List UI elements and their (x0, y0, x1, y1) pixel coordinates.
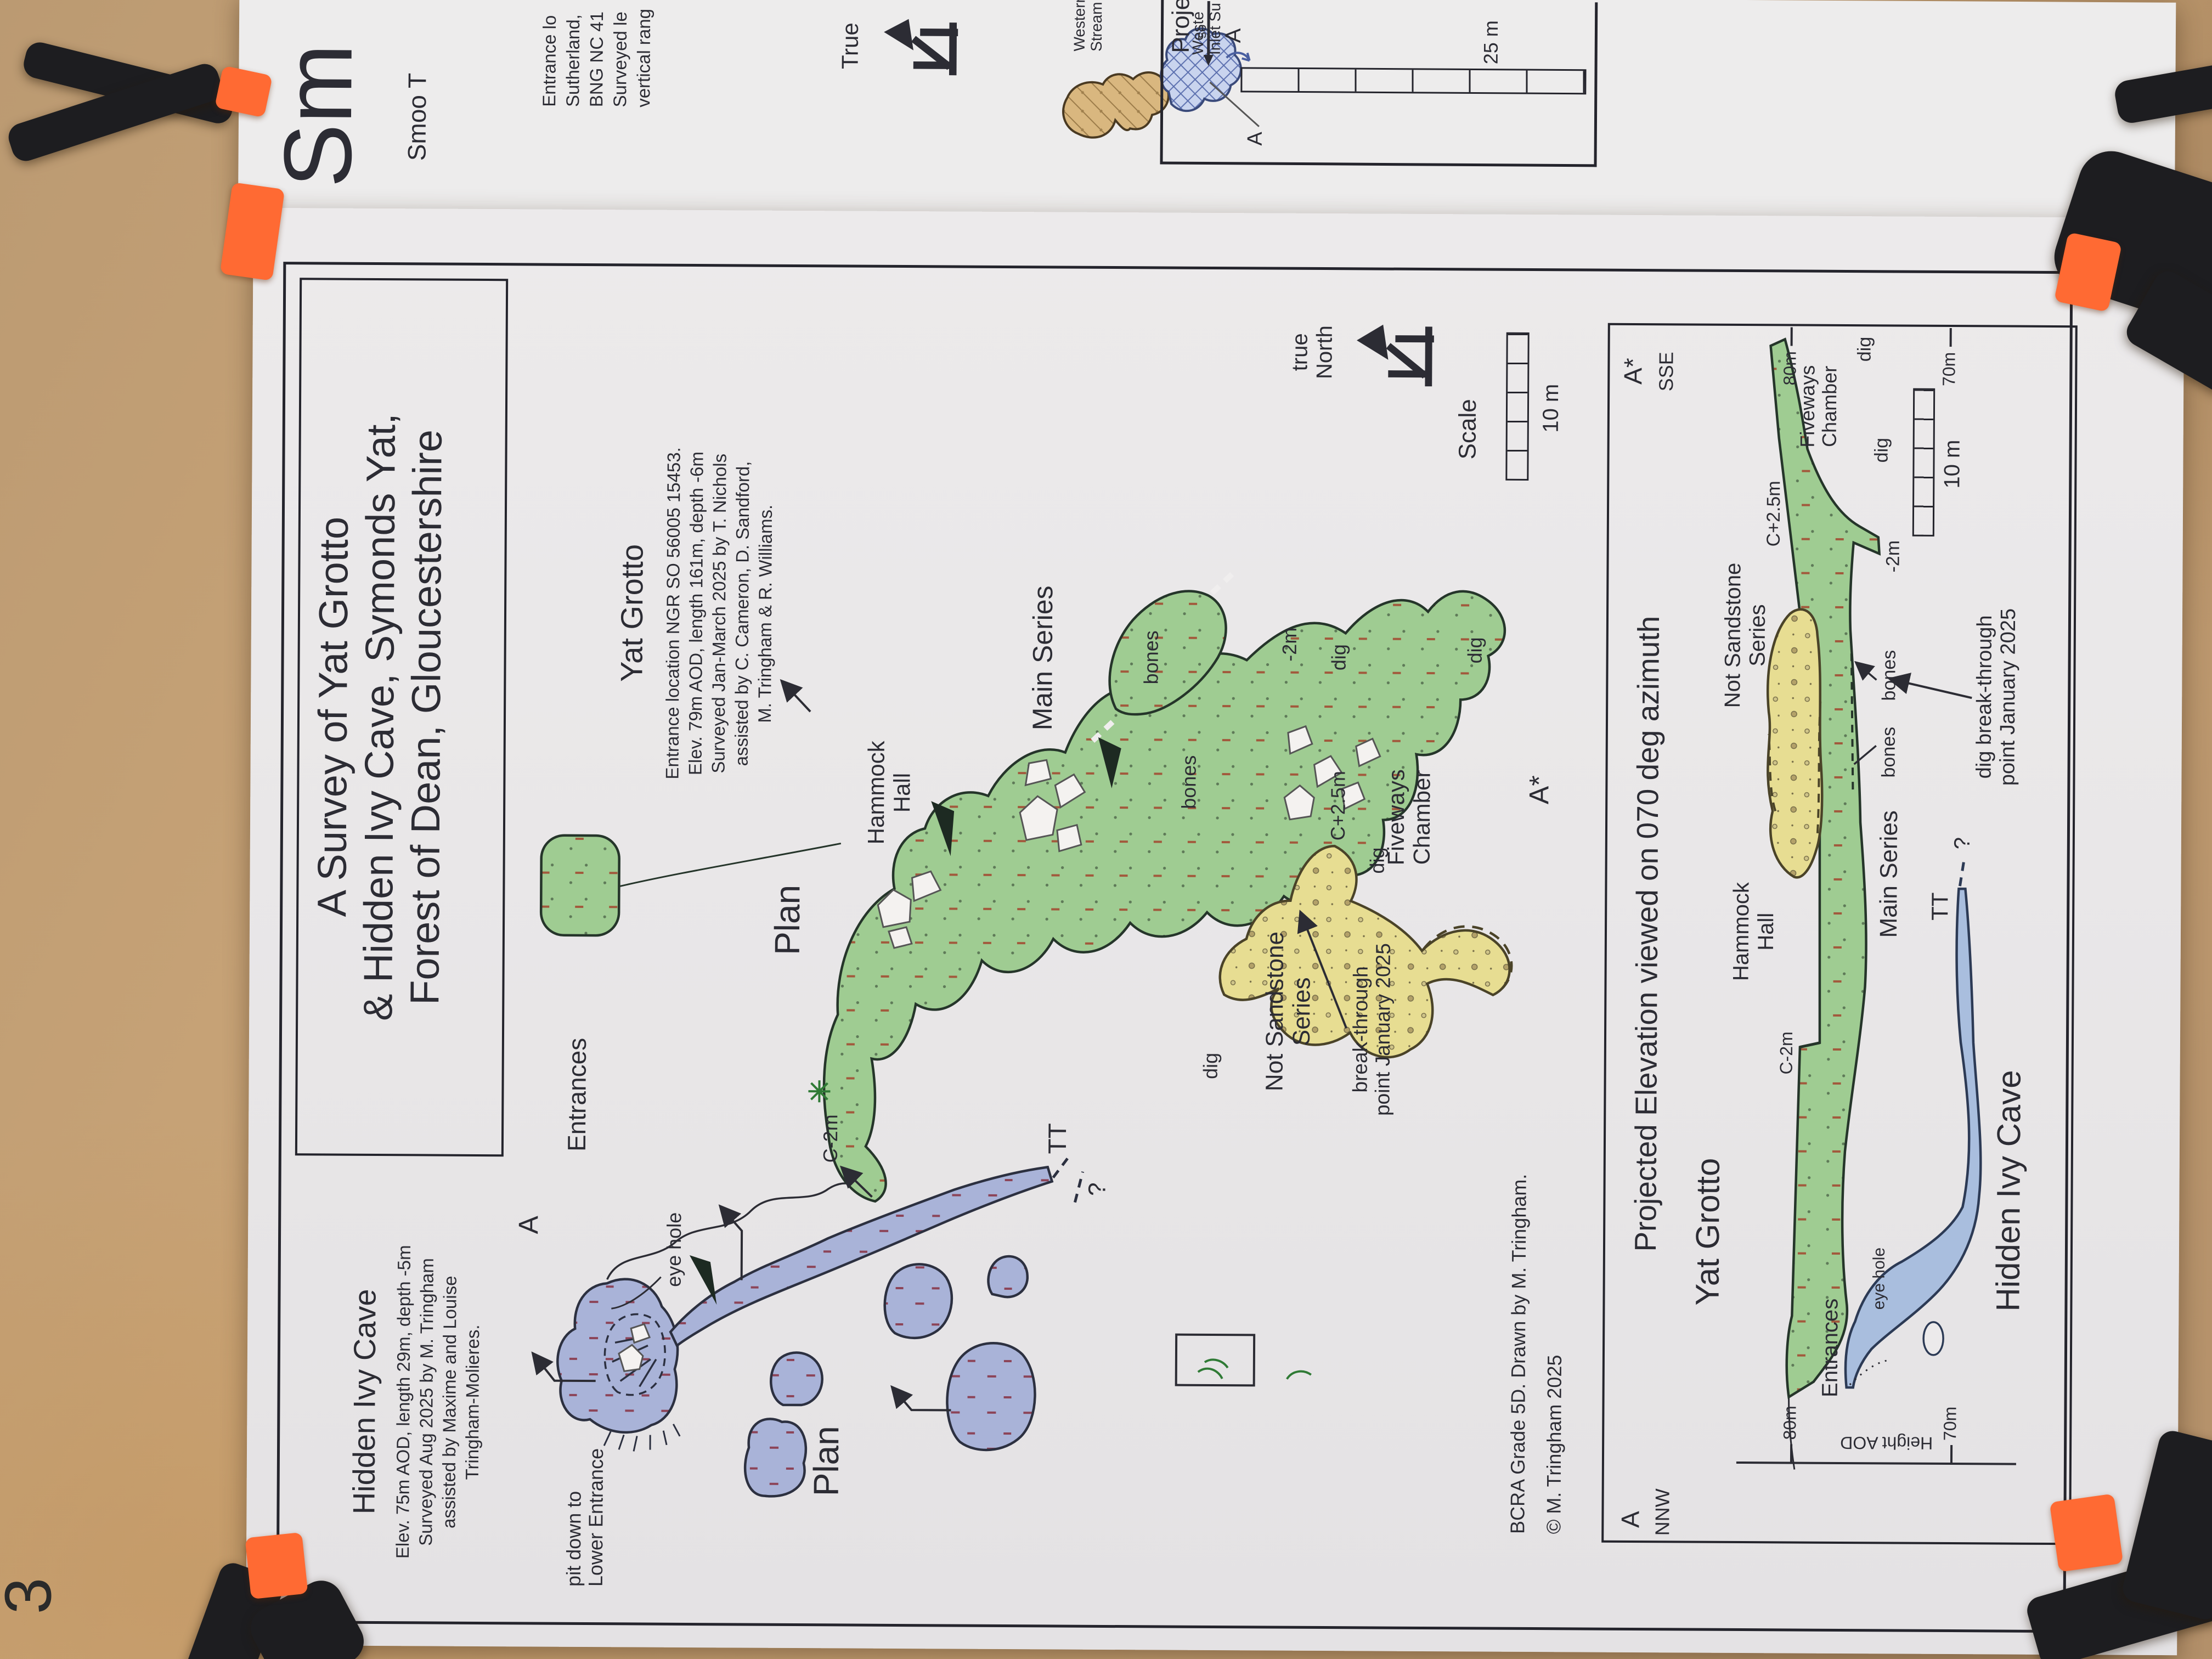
back-western-stream-label: WesternStream (1071, 0, 1105, 52)
plan-fiveways-label: FivewaysChamber (1383, 769, 1435, 866)
elevation-yat-grotto-label: Yat Grotto (1689, 1158, 1726, 1306)
elevation-breakthrough-label: dig break-throughpoint January 2025 (1972, 608, 2020, 786)
elevation-corner-nnw: NNW (1651, 1488, 1674, 1536)
plan-pit-label: pit down toLower Entrance (563, 1448, 608, 1587)
plan-minus-2m-label: -2m (1279, 628, 1301, 662)
back-inset-scale-label: 25 m (1480, 20, 1503, 64)
clamp-bottom-left-pad (245, 1532, 308, 1599)
hidden-ivy-info-line: Elev. 75m AOD, length 29m, depth -5m (393, 1245, 415, 1559)
true-north-label: trueNorth (1288, 325, 1337, 379)
yat-grotto-heading: Yat Grotto (614, 544, 650, 682)
elevation-not-sandstone-label: Not SandstoneSeries (1720, 563, 1770, 708)
back-info-line: Surveyed le (610, 12, 631, 107)
elevation-tick-70m-left: 70m (1940, 1407, 1960, 1441)
yat-grotto-info-line: Entrance location NGR SO 56005 15453. (662, 447, 684, 780)
elevation-tt-label: TT (1927, 892, 1953, 921)
plan-bones-lower-label: bones (1178, 755, 1200, 809)
elevation-hammock-label: HammockHall (1729, 882, 1779, 981)
plan-label-hidden-ivy: Plan (807, 1426, 847, 1496)
elevation-scale-value: 10 m (1940, 439, 1965, 488)
elevation-c-plus-25m-label: C+2.5m (1763, 481, 1785, 546)
elevation-corner-sse: SSE (1655, 352, 1678, 391)
back-sheet-smoo-survey: Sm Smoo T Entrance lo Sutherland, BNG NC… (238, 0, 2176, 245)
back-subtitle-fragment: Smoo T (403, 73, 431, 161)
plan-label-yat: Plan (768, 885, 808, 955)
elevation-corner-a: A (1616, 1511, 1645, 1528)
plan-bones-upper-label: bones (1140, 630, 1163, 684)
title-box: A Survey of Yat Grotto & Hidden Ivy Cave… (295, 278, 508, 1156)
scale-label: Scale (1454, 399, 1482, 459)
back-inset-a-label: A (1221, 28, 1246, 43)
back-info-line: BNG NC 41 (586, 12, 607, 107)
plan-scale-value: 10 m (1539, 384, 1564, 433)
yat-grotto-info-line: Elev. 79m AOD, length 161m, depth -6m (685, 452, 707, 775)
plan-c-plus-25m-label: C+2.5m (1327, 771, 1350, 840)
back-inset-scale-bar (1240, 67, 1586, 94)
plan-dig-nss-label: dig (1200, 1053, 1222, 1079)
elevation-eye-hole-label: eye hole (1870, 1248, 1888, 1310)
plan-a-marker: A (513, 1216, 544, 1234)
elevation-entrances-label: Entrances (1818, 1299, 1843, 1397)
elevation-corner-a-star: A* (1619, 358, 1647, 385)
elevation-question-label: ? (1950, 837, 1975, 849)
yat-grotto-info-line: Surveyed Jan-March 2025 by T. Nichols (708, 454, 730, 774)
plan-tt-label: TT (1043, 1123, 1072, 1154)
north-arrow-icon (1344, 314, 1454, 402)
yat-grotto-info-line: assisted by C. Cameron, D. Sandford, (732, 461, 754, 766)
back-title-fragment: Sm (264, 43, 373, 188)
back-north-arrow-icon (870, 9, 991, 92)
elevation-fiveways-label: FivewaysChamber (1797, 365, 1841, 448)
survey-title-line: Forest of Dean, Gloucestershire (402, 280, 452, 1154)
back-true-north-label: True (837, 22, 864, 69)
elevation-tick-80m-left: 80m (1780, 1406, 1800, 1440)
elevation-main-series-label: Main Series (1875, 810, 1903, 938)
survey-title-line: & Hidden Ivy Cave, Symonds Yat, (355, 280, 405, 1154)
front-sheet-yat-grotto-survey: A Survey of Yat Grotto & Hidden Ivy Cave… (246, 208, 2185, 1655)
elevation-c-minus-2m-label: C-2m (1777, 1031, 1797, 1074)
plan-a-star-marker: A* (1523, 775, 1554, 804)
plan-hammock-hall-label: HammockHall (863, 741, 915, 845)
plan-dig-right-label: dig (1464, 637, 1487, 663)
hidden-ivy-info-line: Tringham-Molieres. (462, 1324, 483, 1480)
elevation-bones-label: bones (1878, 727, 1899, 778)
back-inset-arrow-icon (1200, 0, 1217, 66)
elevation-axis-label: Height AOD (1818, 1432, 1933, 1453)
plan-scale-bar (1505, 332, 1529, 481)
plan-c-minus-2m-label: C-2m (820, 1114, 842, 1163)
plan-not-sandstone-label: Not SandstoneSeries (1261, 932, 1316, 1092)
copyright-line: © M. Tringham 2025 (1543, 1355, 1566, 1534)
elevation-dig-mid-label: dig (1871, 438, 1892, 463)
yat-grotto-info-line: M. Tringham & R. Williams. (755, 505, 776, 723)
elevation-bones-label: bones (1878, 650, 1900, 701)
clamp-bottom-right-pad (2050, 1493, 2124, 1572)
plan-breakthrough-label: break-throughpoint January 2025 (1348, 943, 1395, 1116)
plan-eye-hole-label: eye hole (663, 1212, 686, 1287)
elevation-tick-70m-right: 70m (1939, 352, 1959, 386)
hidden-ivy-info-line: Surveyed Aug 2025 by M. Tringham (416, 1258, 438, 1546)
hidden-ivy-info-line: assisted by Maxime and Louise (439, 1276, 460, 1528)
back-info-line: Entrance lo (539, 15, 560, 107)
elevation-minus-2m-label: -2m (1882, 540, 1903, 573)
elevation-scale-bar (1912, 388, 1935, 537)
plan-tt-dashes (1053, 1158, 1082, 1202)
plan-entrances-label: Entrances (563, 1038, 592, 1152)
back-sheet-content: Sm Smoo T Entrance lo Sutherland, BNG NC… (238, 0, 2176, 242)
page-number: 3 (0, 1578, 66, 1615)
hidden-ivy-heading: Hidden Ivy Cave (347, 1289, 382, 1514)
back-info-line: Sutherland, (563, 14, 584, 107)
plan-hammock-leader-line (620, 842, 840, 887)
plan-question-label: ? (1084, 1182, 1110, 1196)
elevation-title: Projected Elevation viewed on 070 deg az… (1629, 616, 1666, 1252)
elevation-hidden-ivy-label: Hidden Ivy Cave (1989, 1070, 2027, 1312)
photo-of-cave-survey-on-board: Sm Smoo T Entrance lo Sutherland, BNG NC… (0, 0, 2212, 1659)
plan-dig-top-label: dig (1328, 644, 1350, 670)
back-info-line: vertical rang (634, 9, 654, 108)
survey-page-content: A Survey of Yat Grotto & Hidden Ivy Cave… (254, 216, 2176, 1647)
credits-line: BCRA Grade 5D. Drawn by M. Tringham. (1506, 1174, 1531, 1534)
elevation-dig-tip-label: dig (1854, 337, 1875, 362)
back-inset-title-fragment: Proje (1167, 0, 1195, 53)
survey-title-line: A Survey of Yat Grotto (308, 280, 358, 1153)
plan-main-series-label: Main Series (1027, 585, 1058, 730)
